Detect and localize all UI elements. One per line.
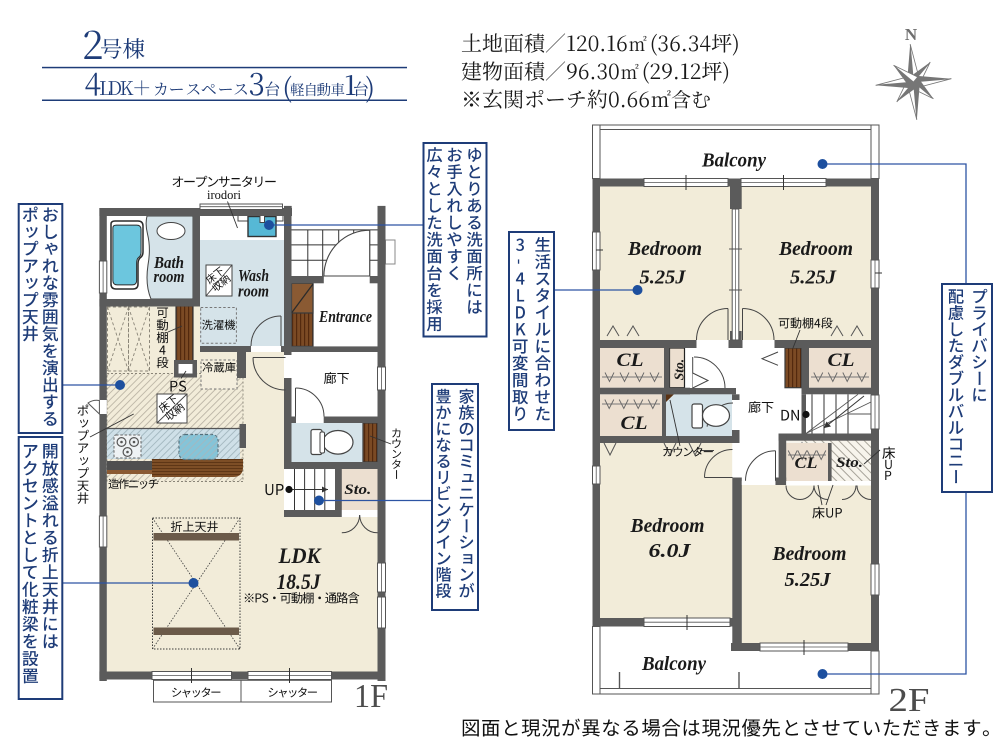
svg-text:CL: CL (621, 413, 648, 434)
svg-text:5.25J: 5.25J (790, 267, 837, 289)
svg-text:1F: 1F (354, 678, 388, 715)
svg-text:irodori: irodori (207, 188, 242, 202)
svg-text:5.25J: 5.25J (785, 569, 832, 591)
svg-text:Bedroom: Bedroom (778, 238, 853, 260)
svg-text:18.5J: 18.5J (277, 569, 322, 594)
svg-text:CL: CL (795, 455, 818, 472)
svg-text:LDK: LDK (278, 543, 322, 568)
svg-text:6.0J: 6.0J (649, 540, 692, 562)
svg-text:room: room (154, 267, 185, 286)
svg-text:5.25J: 5.25J (640, 267, 687, 289)
svg-text:Bedroom: Bedroom (630, 515, 705, 537)
svg-text:Bedroom: Bedroom (627, 238, 702, 260)
svg-text:Balcony: Balcony (701, 150, 766, 172)
svg-text:CL: CL (828, 350, 855, 371)
svg-text:room: room (238, 282, 269, 301)
svg-text:Sto.: Sto. (344, 482, 371, 498)
svg-text:Sto.: Sto. (672, 359, 687, 380)
svg-text:Bedroom: Bedroom (772, 543, 847, 565)
svg-text:CL: CL (617, 350, 644, 371)
svg-text:Balcony: Balcony (641, 653, 706, 675)
svg-text:2F: 2F (889, 682, 930, 719)
svg-text:Sto.: Sto. (836, 455, 863, 471)
svg-text:Entrance: Entrance (318, 307, 372, 326)
svg-text:N: N (905, 25, 918, 44)
